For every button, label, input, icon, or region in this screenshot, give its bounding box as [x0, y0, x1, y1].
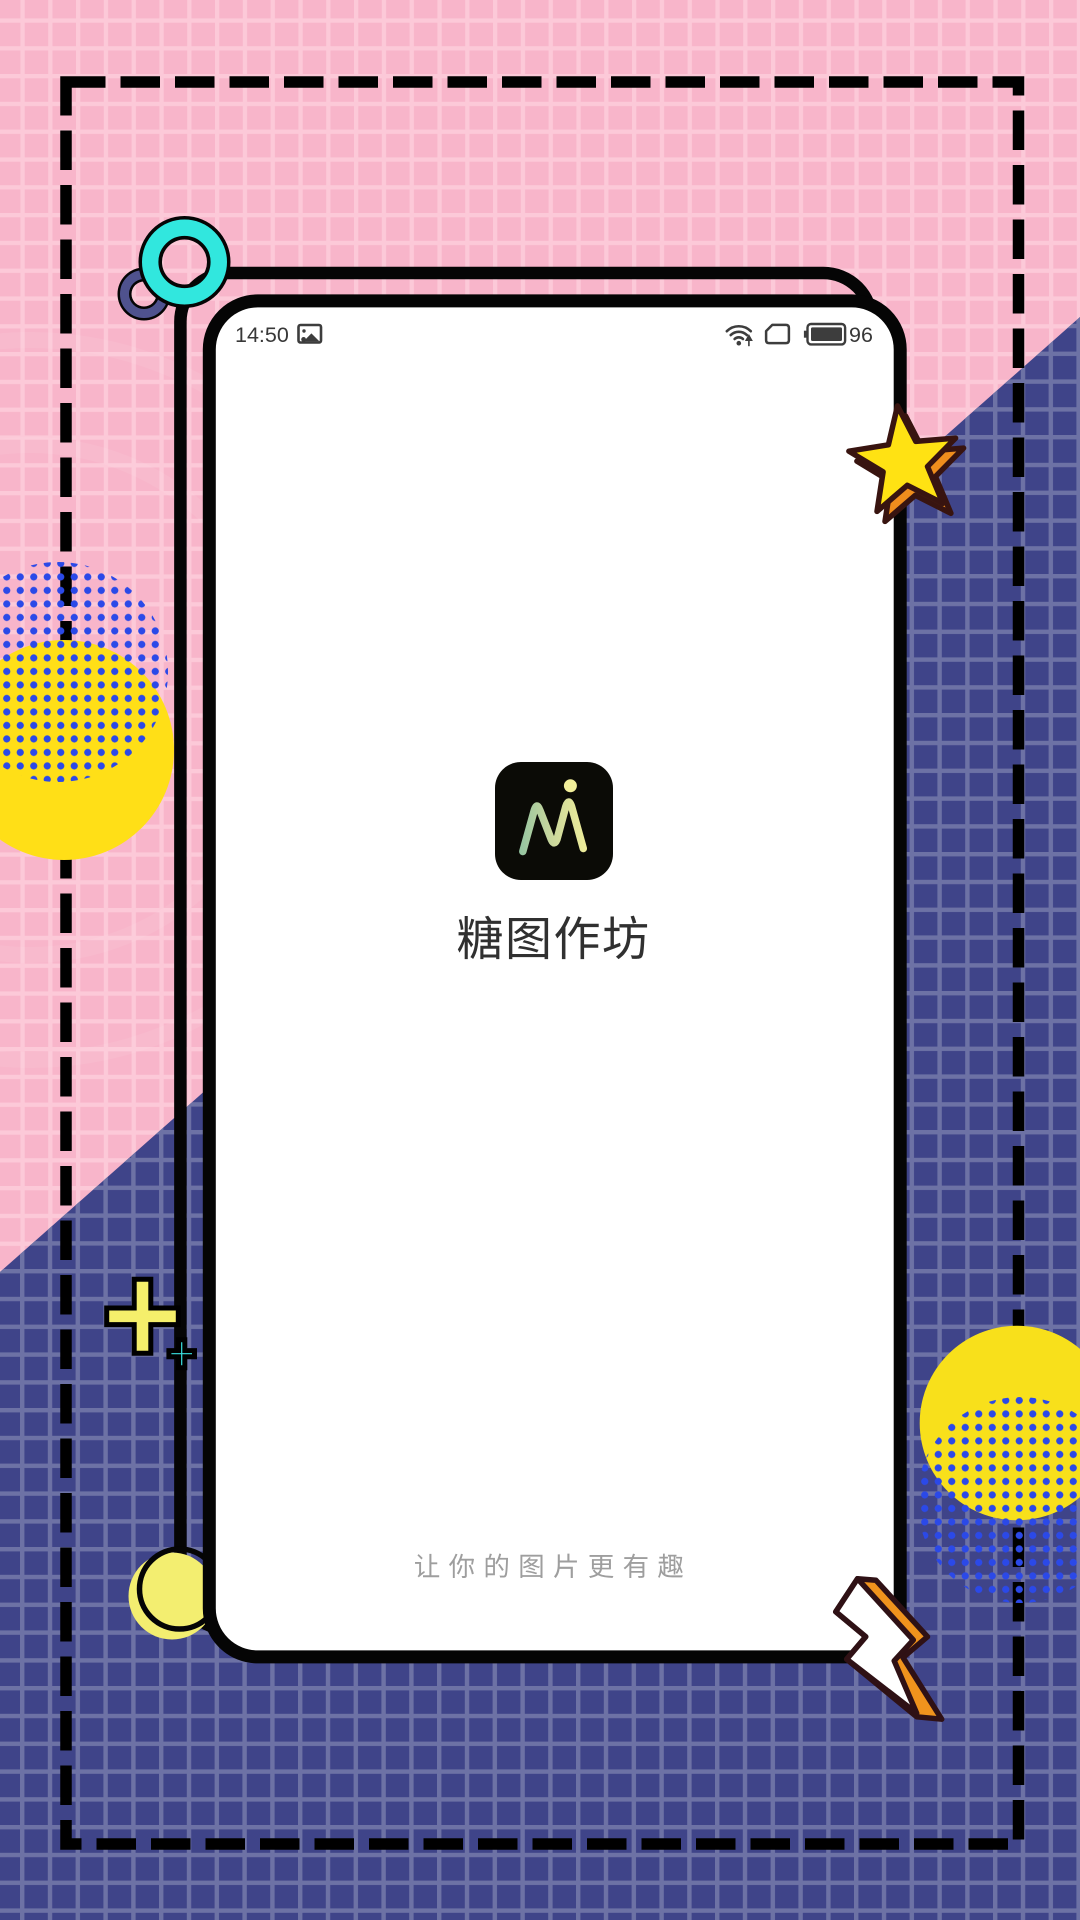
svg-text:96: 96	[849, 323, 873, 347]
svg-text:14:50: 14:50	[235, 323, 289, 347]
